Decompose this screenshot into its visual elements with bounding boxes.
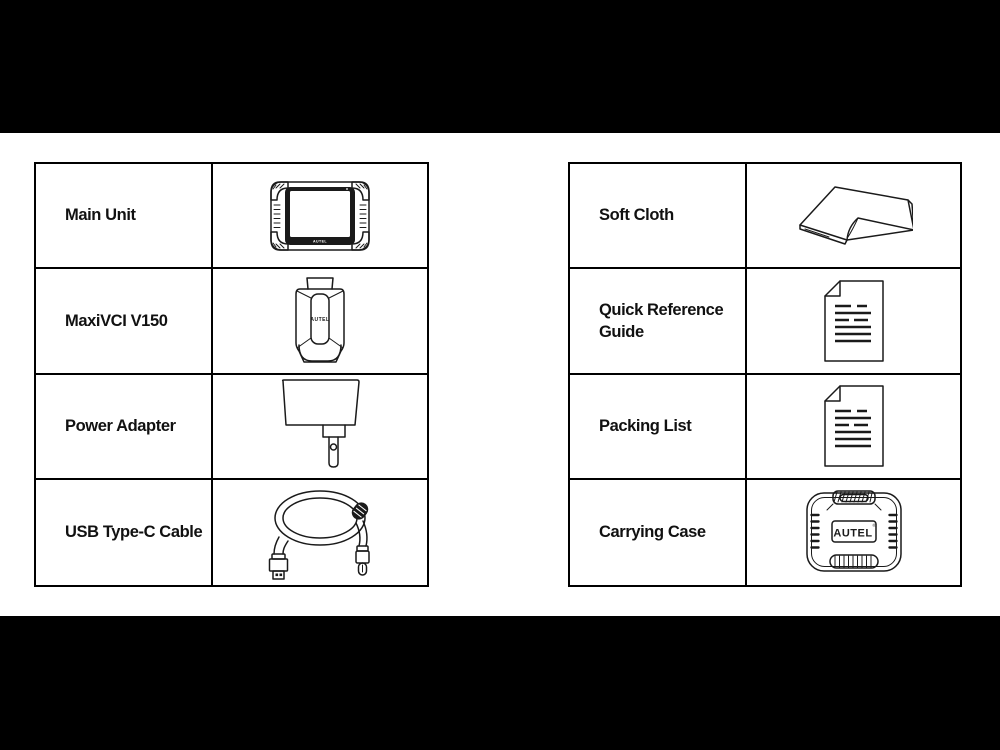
quick-reference-guide-icon (823, 280, 885, 362)
item-image-carrying-case: AUTEL ® (747, 480, 960, 585)
tablet-brand-text: AUTEL (313, 239, 327, 243)
manual-page: Main Unit AUTEL (0, 133, 1000, 616)
packing-list-icon (823, 385, 885, 467)
item-image-packing-list (747, 375, 960, 480)
item-image-quick-reference-guide (747, 269, 960, 374)
item-image-soft-cloth (747, 164, 960, 269)
item-image-maxivci: AUTEL (213, 269, 427, 374)
item-label-text: Packing List (599, 415, 691, 437)
item-label-text: Power Adapter (65, 415, 176, 437)
item-label-maxivci: MaxiVCI V150 (36, 269, 213, 374)
item-label-packing-list: Packing List (570, 375, 747, 480)
item-label-soft-cloth: Soft Cloth (570, 164, 747, 269)
item-label-carrying-case: Carrying Case (570, 480, 747, 585)
usb-type-c-cable-icon (263, 484, 377, 580)
item-label-text: Quick Reference Guide (599, 299, 741, 344)
packing-table-left: Main Unit AUTEL (34, 162, 429, 587)
item-image-power-adapter (213, 375, 427, 480)
carrying-case-icon: AUTEL ® (804, 489, 904, 575)
item-label-text: USB Type-C Cable (65, 521, 202, 543)
item-image-main-unit: AUTEL (213, 164, 427, 269)
item-label-usb-cable: USB Type-C Cable (36, 480, 213, 585)
item-label-text: Carrying Case (599, 521, 706, 543)
item-label-text: MaxiVCI V150 (65, 310, 168, 332)
item-label-quick-reference-guide: Quick Reference Guide (570, 269, 747, 374)
vci-brand-text: AUTEL (310, 317, 329, 323)
item-label-text: Soft Cloth (599, 204, 674, 226)
item-label-text: Main Unit (65, 204, 136, 226)
packing-table-right: Soft Cloth Quick Reference Guide (568, 162, 962, 587)
item-image-usb-cable (213, 480, 427, 585)
top-letterbox-bar (0, 0, 1000, 133)
maxivci-v150-icon: AUTEL (288, 277, 352, 365)
soft-cloth-icon (795, 180, 913, 252)
bottom-letterbox-bar (0, 616, 1000, 750)
power-adapter-icon (276, 378, 364, 474)
case-brand-text: AUTEL (833, 528, 872, 540)
main-unit-icon: AUTEL (268, 180, 372, 252)
item-label-main-unit: Main Unit (36, 164, 213, 269)
item-label-power-adapter: Power Adapter (36, 375, 213, 480)
